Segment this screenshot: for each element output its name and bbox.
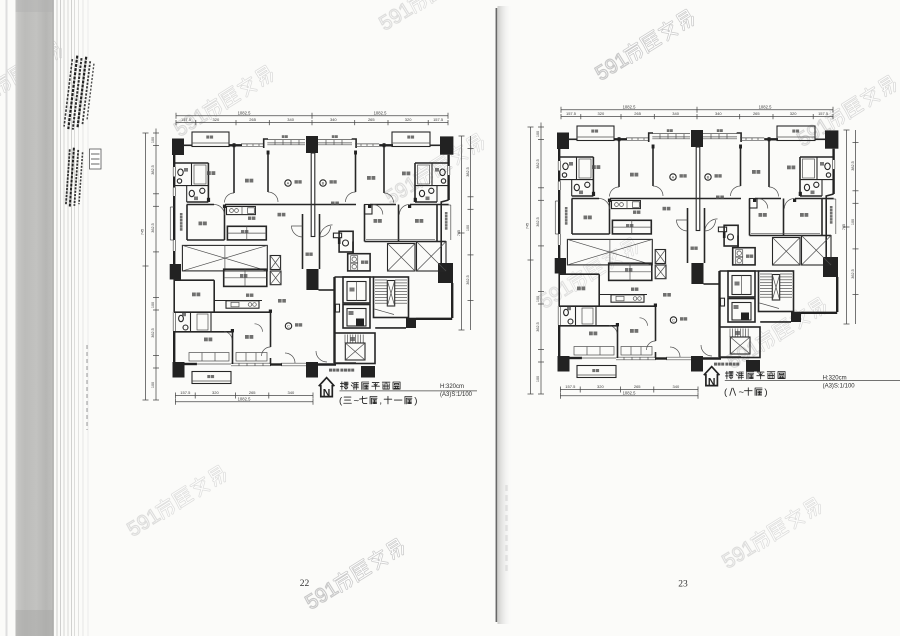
svg-text:,: ,: [379, 396, 382, 407]
svg-text:H:320cm: H:320cm: [440, 384, 464, 390]
svg-text:22: 22: [300, 579, 310, 589]
svg-text:N: N: [323, 387, 331, 399]
svg-text:23: 23: [678, 580, 688, 590]
svg-text:H:320cm: H:320cm: [823, 375, 847, 381]
svg-text:N: N: [708, 376, 716, 388]
svg-text:): ): [414, 396, 417, 407]
svg-text:~: ~: [739, 387, 745, 398]
svg-text:(A3)S:1/100: (A3)S:1/100: [440, 392, 473, 398]
svg-text:(A3)S:1/100: (A3)S:1/100: [823, 383, 856, 389]
svg-text:~: ~: [354, 396, 360, 407]
svg-text:): ): [764, 387, 767, 398]
